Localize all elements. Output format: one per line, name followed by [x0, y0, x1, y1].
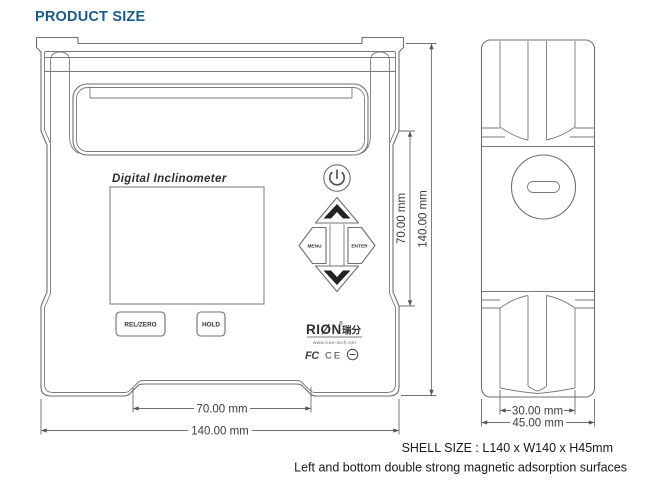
menu-button-label: MENU — [307, 244, 322, 250]
rel-zero-button-label: REL/ZERO — [124, 322, 156, 329]
power-button — [324, 165, 350, 191]
brand-label: Digital Inclinometer — [112, 173, 227, 185]
handle-cutout — [51, 52, 390, 155]
page-title: PRODUCT SIZE — [35, 9, 145, 25]
dim-front-width-half: 70.00 mm — [196, 403, 247, 415]
shell-size-note: SHELL SIZE : L140 x W140 x H45mm — [402, 441, 613, 455]
emc-circle-mark — [347, 349, 357, 359]
top-panel-lines — [45, 52, 396, 72]
dim-front-width-total: 140.00 mm — [191, 425, 249, 437]
dimension-annotations: 70.00 mm 140.00 mm 70.00 mm 140.00 mm 30… — [41, 44, 595, 438]
ce-mark: CE — [325, 351, 342, 362]
lcd-display — [110, 187, 264, 304]
menu-button: MENU — [299, 228, 326, 264]
hold-button: HOLD — [197, 312, 225, 336]
latch-slot — [528, 182, 560, 193]
brand-logo: RIØN ® 瑞分 www.rion-tech.net FC CE — [305, 320, 362, 362]
side-bottom-section — [482, 292, 595, 394]
logo-wordmark: RIØN — [306, 322, 342, 337]
arrow-up-button — [316, 198, 359, 224]
keypad-center-column — [330, 225, 344, 267]
product-size-drawing-page: PRODUCT SIZE Digital Inclinometer — [0, 0, 650, 494]
magnetic-note: Left and bottom double strong magnetic a… — [294, 461, 627, 475]
fcc-mark: FC — [305, 350, 320, 362]
dim-side-width-total: 45.00 mm — [512, 417, 563, 429]
front-view-drawing: Digital Inclinometer MENU ENTER — [37, 38, 404, 397]
logo-wordmark-cn: 瑞分 — [342, 325, 362, 337]
rel-zero-button: REL/ZERO — [116, 312, 165, 336]
enter-button: ENTER — [348, 228, 375, 264]
dim-front-height-total: 140.00 mm — [418, 190, 430, 248]
side-view-drawing — [482, 40, 595, 397]
side-top-section — [482, 41, 595, 147]
side-round-latch — [512, 155, 576, 219]
logo-website: www.rion-tech.net — [313, 340, 357, 346]
dim-front-height-half: 70.00 mm — [396, 193, 408, 244]
hold-button-label: HOLD — [202, 322, 220, 329]
arrow-down-icon — [324, 271, 351, 286]
arrow-down-button — [316, 266, 359, 292]
power-icon — [330, 170, 344, 185]
enter-button-label: ENTER — [351, 244, 368, 250]
arrow-up-icon — [324, 204, 351, 219]
